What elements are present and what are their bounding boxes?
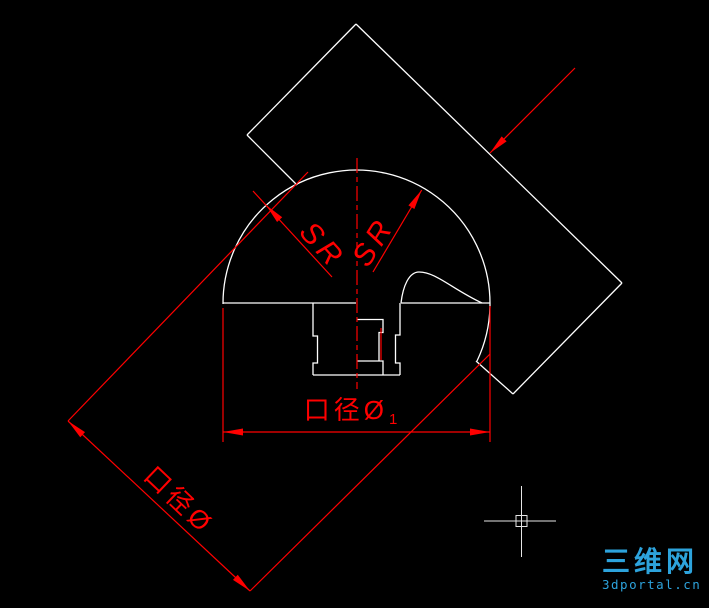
dim-horizontal-arrowhead-right: [470, 429, 490, 436]
dim-diagonal-ext-left[interactable]: [68, 172, 308, 421]
aperture-diameter-label-horizontal[interactable]: 口径Ø1: [304, 397, 401, 423]
watermark: 三维网 3dportal.cn: [602, 548, 701, 592]
sr-right-arrowhead: [408, 188, 424, 209]
watermark-site-name: 三维网: [602, 548, 701, 576]
cavity-curve[interactable]: [401, 272, 482, 303]
plate-edge-lower-right[interactable]: [513, 283, 622, 394]
stem-left-profile[interactable]: [313, 303, 318, 375]
cad-geometry-layer[interactable]: [0, 0, 709, 608]
stem-right-profile[interactable]: [396, 303, 401, 375]
bore-counterbore[interactable]: [357, 320, 383, 362]
dim-horizontal-arrowhead-left: [223, 429, 243, 436]
bore-lower-step[interactable]: [357, 361, 383, 375]
cad-drawing-canvas[interactable]: SR SR 口径Ø 口径Ø1 三维网 3dportal.cn: [0, 0, 709, 608]
dim-diagonal-line[interactable]: [68, 421, 250, 591]
aperture-diameter-text: 口径Ø: [304, 395, 388, 425]
plate-edge-lower-left-a[interactable]: [247, 135, 297, 185]
plate-edge-upper-left[interactable]: [247, 24, 356, 135]
plate-edge-upper-right[interactable]: [356, 24, 622, 283]
plate-edge-lower-left-b[interactable]: [476, 361, 513, 394]
dim-diagonal-ext-right[interactable]: [250, 354, 490, 591]
leader-arrowhead: [488, 136, 507, 155]
aperture-diameter-subscript: 1: [389, 411, 401, 428]
watermark-site-url: 3dportal.cn: [602, 579, 701, 592]
